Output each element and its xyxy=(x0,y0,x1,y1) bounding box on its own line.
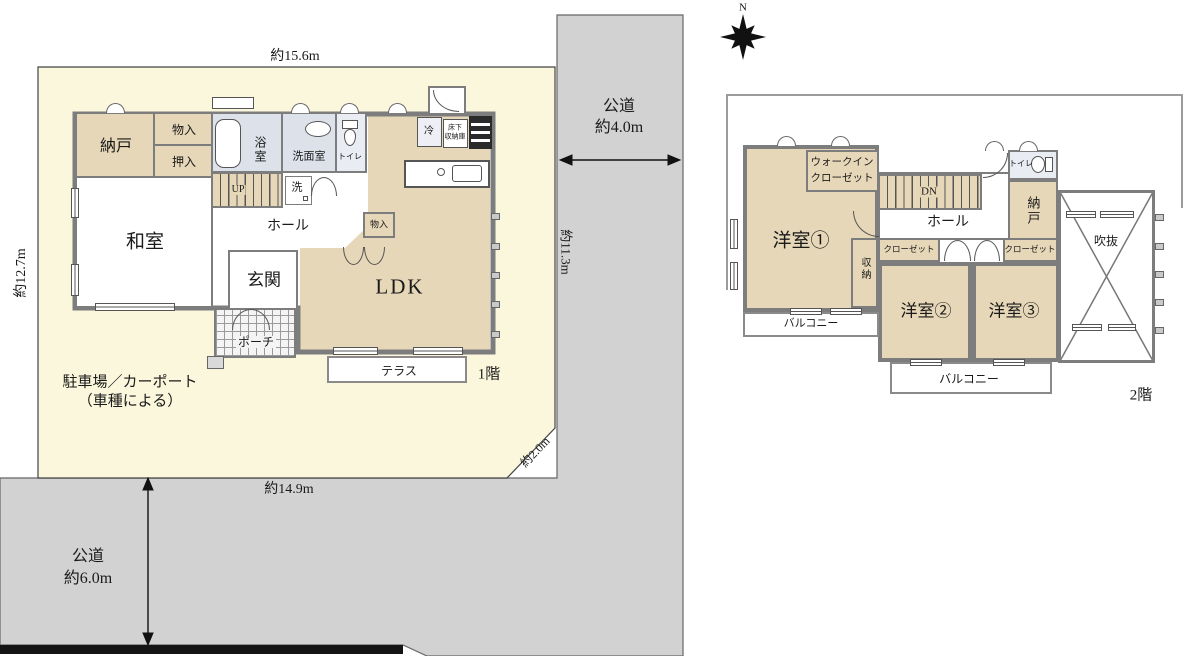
stairs-1f xyxy=(211,172,283,208)
label-hall-1f: ホール xyxy=(267,220,309,234)
window xyxy=(910,359,942,366)
label-monoire-ldk: 物入 xyxy=(370,221,388,230)
label-void: 吹抜 xyxy=(1092,235,1120,247)
window xyxy=(413,347,463,355)
wall-tick xyxy=(1155,327,1164,334)
label-hall-2f: ホール xyxy=(927,216,969,230)
label-toilet-2f: トイレ xyxy=(1009,160,1033,168)
window xyxy=(1066,211,1096,218)
wall-tick xyxy=(491,272,500,279)
window xyxy=(790,308,822,315)
label-bath: 浴室 xyxy=(254,136,266,164)
label-toilet-1f: トイレ xyxy=(338,153,362,161)
label-nando-1f: 納戸 xyxy=(100,139,132,155)
dim-bottom: 約14.9m xyxy=(264,483,313,497)
dim-right: 約11.3m xyxy=(560,229,573,274)
road-bottom-label-1: 公道 xyxy=(72,549,104,565)
dim-left: 約12.7m xyxy=(15,248,29,297)
wall-tick xyxy=(1155,243,1164,250)
label-yoshitsu1: 洋室① xyxy=(772,232,829,251)
faucet-icon xyxy=(437,168,445,176)
floor-plan-canvas: N 約15.6m 約12.7m 公道 約4.0m 約11.3m 約2.0m 約1… xyxy=(0,0,1192,656)
window xyxy=(830,308,862,315)
stove-icon xyxy=(469,116,492,149)
label-genkan: 玄関 xyxy=(247,272,281,289)
label-floor2: 2階 xyxy=(1130,389,1153,404)
label-wic-2: クローゼット xyxy=(811,174,874,185)
window xyxy=(993,359,1025,366)
window xyxy=(1072,324,1102,331)
parking-label-1: 駐車場／カーポート xyxy=(62,376,197,391)
parking-label-2: （車種による） xyxy=(78,395,183,410)
wall-tick xyxy=(491,213,500,220)
label-washer: 洗 xyxy=(292,183,303,194)
label-monoire-1f: 物入 xyxy=(172,124,196,136)
road-right-label-1: 公道 xyxy=(603,99,635,115)
window xyxy=(730,219,738,249)
window xyxy=(1108,324,1136,331)
kitchen-sink-icon xyxy=(452,165,482,182)
sink-icon xyxy=(305,121,331,137)
dim-top: 約15.6m xyxy=(270,50,319,64)
label-stairs-dn: DN xyxy=(920,187,938,198)
label-stairs-up: UP xyxy=(231,185,246,195)
wall-tick xyxy=(491,243,500,250)
window xyxy=(1100,211,1134,218)
label-yoshitsu3: 洋室③ xyxy=(989,303,1040,320)
label-balcony-left: バルコニー xyxy=(784,319,839,330)
bathtub-icon xyxy=(215,119,241,168)
label-senmen: 洗面室 xyxy=(293,152,326,163)
road-right-label-2: 約4.0m xyxy=(595,120,643,136)
label-closet-left: クローゼット xyxy=(883,245,934,254)
toilet-icon-1f xyxy=(342,120,358,129)
porch-step xyxy=(207,356,224,369)
label-washitsu: 和室 xyxy=(126,233,164,252)
label-shunou: 収納 xyxy=(859,257,869,281)
label-yoshitsu2: 洋室② xyxy=(901,303,952,320)
label-floor1: 1階 xyxy=(478,368,501,383)
wall-tick xyxy=(491,331,500,338)
room-senmen xyxy=(281,112,337,173)
road-edge-bar xyxy=(0,645,403,654)
compass-north-label: N xyxy=(739,3,747,14)
label-floor-storage-2: 収納庫 xyxy=(445,134,466,141)
label-closet-right: クローゼット xyxy=(1004,245,1055,254)
label-fridge: 冷 xyxy=(424,127,434,137)
road-bottom-label-2: 約6.0m xyxy=(64,571,112,587)
bath-window xyxy=(212,97,254,109)
window xyxy=(333,347,378,355)
window xyxy=(71,264,79,296)
label-oshiire: 押入 xyxy=(172,156,196,168)
wall-tick xyxy=(1155,271,1164,278)
toilet-tank-2f xyxy=(1045,157,1053,172)
label-nando-2f: 納戸 xyxy=(1027,196,1040,226)
label-balcony-bottom: バルコニー xyxy=(939,373,999,385)
wall-tick xyxy=(1155,214,1164,221)
window xyxy=(71,188,79,218)
compass-icon xyxy=(720,14,766,60)
label-ldk: LDK xyxy=(375,277,424,298)
label-porch: ポーチ xyxy=(236,336,276,348)
label-floor-storage-1: 床下 xyxy=(448,125,462,132)
label-wic-1: ウォークイン xyxy=(811,158,874,169)
window xyxy=(730,262,738,290)
window xyxy=(95,303,175,311)
washer-dot xyxy=(303,196,308,201)
wall-tick xyxy=(1155,299,1164,306)
label-terrace: テラス xyxy=(381,365,417,377)
wall-tick xyxy=(491,301,500,308)
